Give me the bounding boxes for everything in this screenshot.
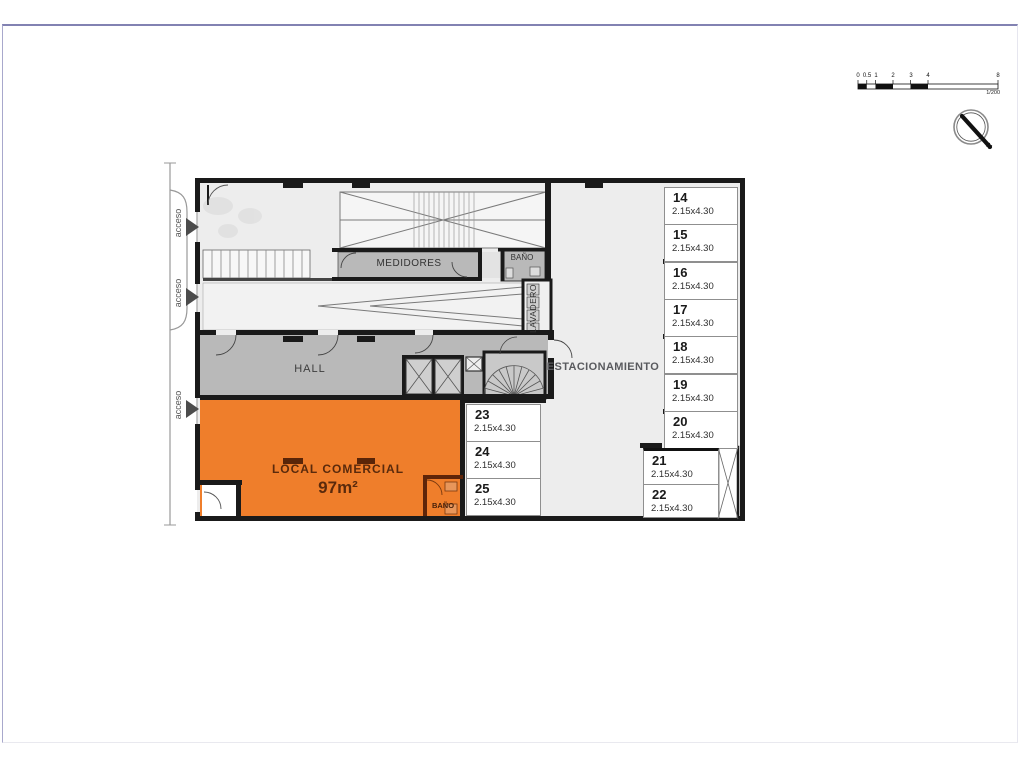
spot-dims: 2.15x4.30 <box>474 423 540 434</box>
bano-top-label: BAÑO <box>496 253 548 262</box>
stairs-left <box>203 250 310 278</box>
stairs-wall <box>203 278 338 281</box>
scale-label-0: 0 <box>856 73 859 79</box>
spot-number: 15 <box>673 228 737 242</box>
spot-number: 18 <box>673 340 737 354</box>
parking-spot-18: 18 2.15x4.30 <box>664 336 738 374</box>
wall-vertical-right-top <box>545 182 551 282</box>
spot-number: 14 <box>673 191 737 205</box>
hall-label: HALL <box>250 363 370 375</box>
spot-number: 16 <box>673 266 737 280</box>
entry-vestibule <box>198 480 242 519</box>
scale-label-1: 1 <box>874 73 877 79</box>
parking-spot-24: 24 2.15x4.30 <box>466 441 541 479</box>
local-comercial-label: LOCAL COMERCIAL <box>238 462 438 476</box>
scale-label-2: 2 <box>891 73 894 79</box>
duct-box <box>466 357 482 371</box>
ramp-lower <box>203 283 523 330</box>
spot-dims: 2.15x4.30 <box>651 469 718 480</box>
spot-dims: 2.15x4.30 <box>672 243 737 254</box>
spot-dims: 2.15x4.30 <box>672 430 737 441</box>
acceso-label-1: acceso <box>173 203 183 243</box>
scale-label-3: 3 <box>909 73 912 79</box>
wall-above-spot23 <box>460 398 546 403</box>
spot-dims: 2.15x4.30 <box>672 206 737 217</box>
parking-spot-20: 20 2.15x4.30 <box>664 411 738 449</box>
bano-local-label: BAÑO <box>423 501 463 510</box>
acceso-arrow-1 <box>186 218 199 236</box>
parking-spot-16: 16 2.15x4.30 <box>664 262 738 300</box>
acceso-label-3: acceso <box>173 385 183 425</box>
parking-spot-21: 21 2.15x4.30 <box>643 448 719 485</box>
spot-dims: 2.15x4.30 <box>474 497 540 508</box>
spot-number: 25 <box>475 482 540 496</box>
acceso-arrow-3 <box>186 400 199 418</box>
estacionamiento-label: ESTACIONAMIENTO <box>545 361 661 373</box>
spot-dims: 2.15x4.30 <box>672 393 737 404</box>
spot-number: 19 <box>673 378 737 392</box>
spot-number: 22 <box>652 488 718 502</box>
lavadero-label: LAVADERO <box>528 281 542 335</box>
parking-spot-19: 19 2.15x4.30 <box>664 374 738 412</box>
spot-dims: 2.15x4.30 <box>651 503 718 514</box>
scale-label-4: 4 <box>926 73 929 79</box>
parking-spot-22: 22 2.15x4.30 <box>643 484 719 518</box>
acceso-arrow-2 <box>186 288 199 306</box>
parking-spot-23: 23 2.15x4.30 <box>466 404 541 442</box>
ramp-upper <box>340 192 546 248</box>
floorplan-linework <box>0 0 1024 768</box>
local-area-label: 97m² <box>238 478 438 498</box>
hatched-box <box>718 447 738 519</box>
scale-label-8: 8 <box>996 73 999 79</box>
spot-number: 20 <box>673 415 737 429</box>
spot-dims: 2.15x4.30 <box>672 281 737 292</box>
parking-spot-15: 15 2.15x4.30 <box>664 224 738 262</box>
parking-spot-17: 17 2.15x4.30 <box>664 299 738 337</box>
parking-spot-25: 25 2.15x4.30 <box>466 478 541 516</box>
parking-spot-14: 14 2.15x4.30 <box>664 187 738 225</box>
spot-number: 21 <box>652 454 718 468</box>
spot-number: 17 <box>673 303 737 317</box>
scale-ratio-label: 1/200 <box>972 90 1000 96</box>
spot-number: 23 <box>475 408 540 422</box>
spot-number: 24 <box>475 445 540 459</box>
elevators <box>402 355 464 398</box>
acceso-label-2: acceso <box>173 273 183 313</box>
spot-dims: 2.15x4.30 <box>672 318 737 329</box>
medidores-label: MEDIDORES <box>344 258 474 269</box>
compass-icon <box>954 110 990 147</box>
floorplan-page: MEDIDORES BAÑO LAVADERO HALL ESTACIONAMI… <box>0 0 1024 768</box>
scale-bar <box>858 80 998 89</box>
spot-dims: 2.15x4.30 <box>474 460 540 471</box>
spot-dims: 2.15x4.30 <box>672 355 737 366</box>
scale-label-05: 0.5 <box>863 73 871 79</box>
